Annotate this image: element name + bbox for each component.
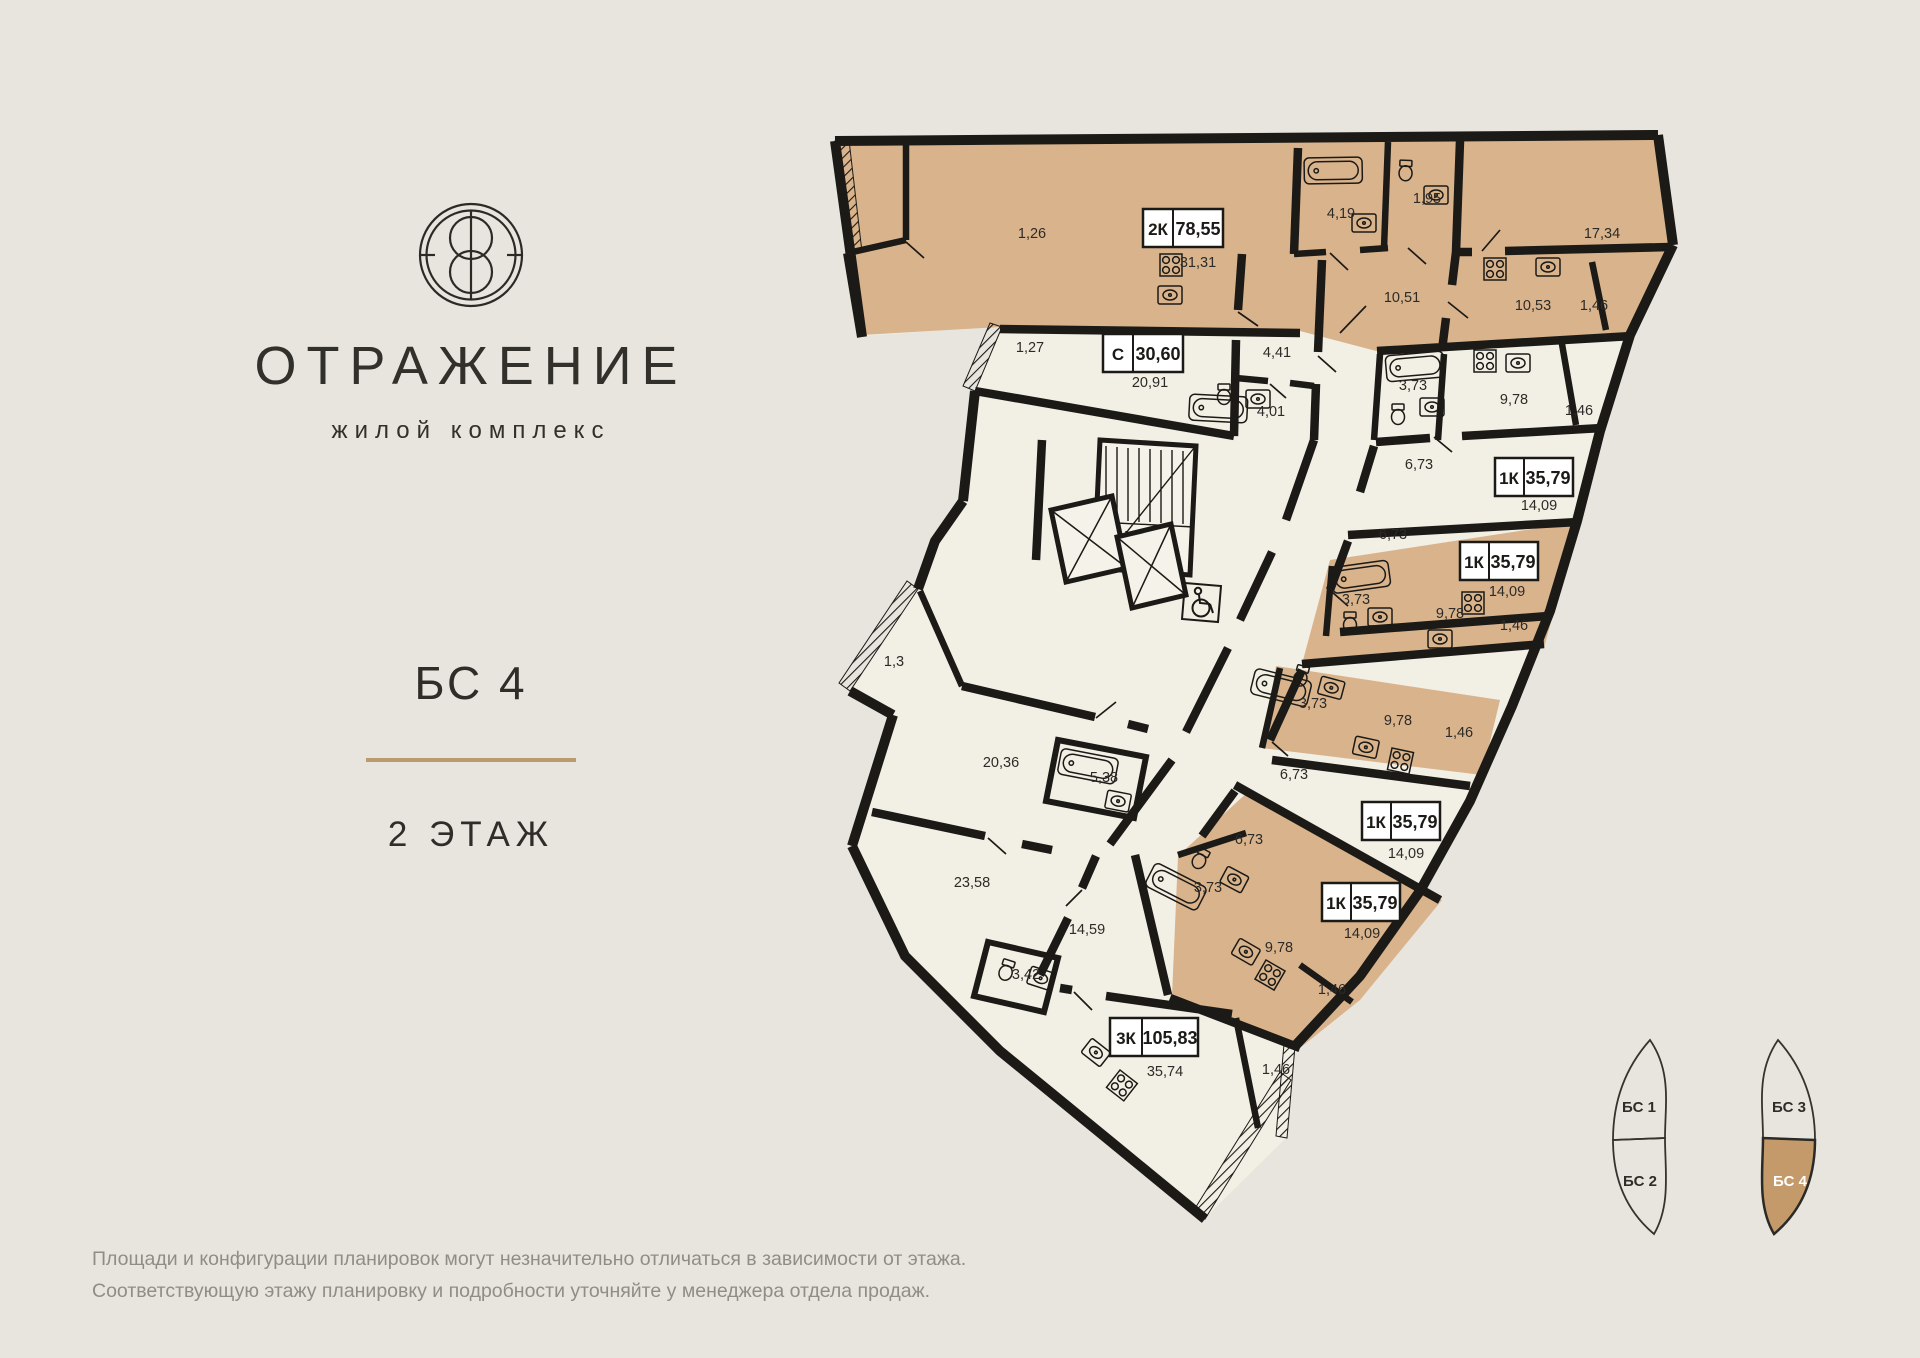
room-area-label: 20,91 (1132, 375, 1168, 391)
room-area-label: 1,46 (1565, 403, 1593, 419)
disclaimer-line-2: Соответствующую этажу планировку и подро… (92, 1275, 966, 1307)
room-area-label: 6,73 (1405, 457, 1433, 473)
section-title: БС 4 (151, 656, 791, 710)
room-area-label: 20,36 (983, 755, 1019, 771)
brochure-page: 1,26 31,31 4,19 1,95 17,34 10,51 10,53 1… (0, 0, 1920, 1358)
apartment-tag-3k[interactable]: 3К 105,83 (1110, 1018, 1198, 1056)
room-area-label: 3,73 (1399, 378, 1427, 394)
apartment-tag-2k[interactable]: 2К 78,55 (1143, 209, 1223, 247)
brand-logo-icon (418, 202, 524, 308)
room-area-label: 14,09 (1344, 926, 1380, 942)
room-area-label: 4,41 (1263, 345, 1291, 361)
apartment-area: 30,60 (1135, 344, 1180, 364)
room-area-label: 14,09 (1388, 846, 1424, 862)
room-area-label: 31,31 (1180, 255, 1216, 271)
brand-name: ОТРАЖЕНИЕ (151, 334, 791, 398)
room-area-label: 1,46 (1500, 618, 1528, 634)
room-area-label: 35,74 (1147, 1064, 1183, 1080)
apartment-type: 1К (1366, 813, 1386, 832)
room-area-label: 1,46 (1580, 298, 1608, 314)
room-area-label: 6,73 (1379, 527, 1407, 543)
room-area-label: 10,51 (1384, 290, 1420, 306)
minimap-section-label: БС 4 (1773, 1173, 1808, 1190)
minimap-section-bs3[interactable]: БС 3 (1762, 1040, 1815, 1140)
room-area-label: 3,42 (1012, 967, 1040, 983)
room-area-label: 17,34 (1584, 226, 1620, 242)
room-area-label: 4,01 (1257, 404, 1285, 420)
minimap-section-bs4-active[interactable]: БС 4 (1762, 1138, 1815, 1234)
floor-title: 2 ЭТАЖ (151, 814, 791, 856)
room-area-label: 1,46 (1445, 725, 1473, 741)
room-area-label: 1,46 (1318, 982, 1346, 998)
apartment-area: 35,79 (1352, 893, 1397, 913)
apartment-area: 35,79 (1525, 468, 1570, 488)
disclaimer-line-1: Площади и конфигурации планировок могут … (92, 1243, 966, 1275)
apartment-type: 1К (1326, 894, 1346, 913)
disclaimer: Площади и конфигурации планировок могут … (92, 1243, 966, 1307)
room-area-label: 5,38 (1090, 770, 1118, 786)
room-area-label: 14,59 (1069, 922, 1105, 938)
apartment-tag-1k[interactable]: 1К 35,79 (1495, 458, 1573, 496)
room-area-label: 1,46 (1262, 1062, 1290, 1078)
minimap-section-label: БС 2 (1623, 1173, 1657, 1190)
room-area-label: 3,73 (1342, 592, 1370, 608)
room-area-label: 14,09 (1521, 498, 1557, 514)
apartment-type: 1К (1464, 553, 1484, 572)
apartment-type: 3К (1116, 1029, 1136, 1048)
room-area-label: 10,53 (1515, 298, 1551, 314)
room-area-label: 3,73 (1299, 696, 1327, 712)
apartment-tag-1k[interactable]: 1К 35,79 (1460, 542, 1538, 580)
room-area-label: 9,78 (1384, 713, 1412, 729)
apartment-area: 35,79 (1490, 552, 1535, 572)
room-area-label: 1,27 (1016, 340, 1044, 356)
apartment-tag-studio[interactable]: С 30,60 (1103, 334, 1183, 372)
room-area-label: 9,78 (1436, 606, 1464, 622)
minimap-section-bs1[interactable]: БС 1 (1613, 1040, 1666, 1140)
apartment-type: С (1112, 345, 1124, 364)
brand-panel: ОТРАЖЕНИЕ жилой комплекс БС 4 2 ЭТАЖ (151, 150, 791, 856)
room-area-label: 1,26 (1018, 226, 1046, 242)
room-area-label: 1,3 (884, 654, 904, 670)
room-area-label: 6,73 (1280, 767, 1308, 783)
elevator-icon (1117, 524, 1186, 608)
room-area-label: 1,95 (1413, 191, 1441, 207)
apartment-area: 105,83 (1142, 1028, 1197, 1048)
apartment-tag-1k[interactable]: 1К 35,79 (1322, 883, 1400, 921)
room-area-label: 4,19 (1327, 206, 1355, 222)
room-area-label: 9,78 (1265, 940, 1293, 956)
apartment-type: 1К (1499, 469, 1519, 488)
apartment-type: 2К (1148, 220, 1168, 239)
room-area-label: 14,09 (1489, 584, 1525, 600)
minimap-section-label: БС 3 (1772, 1099, 1806, 1116)
brand-tagline: жилой комплекс (151, 416, 791, 446)
room-area-label: 3,73 (1194, 880, 1222, 896)
minimap-section-bs2[interactable]: БС 2 (1613, 1138, 1666, 1234)
apartment-2k-zone (840, 138, 1670, 352)
minimap-section-label: БС 1 (1622, 1099, 1656, 1116)
minimap: БС 1 БС 2 БС 3 БС 4 (1613, 1040, 1815, 1234)
apartment-tag-1k[interactable]: 1К 35,79 (1362, 802, 1440, 840)
accent-divider (366, 758, 576, 762)
room-area-label: 23,58 (954, 875, 990, 891)
apartment-area: 78,55 (1175, 219, 1220, 239)
room-area-label: 9,78 (1500, 392, 1528, 408)
apartment-area: 35,79 (1392, 812, 1437, 832)
room-area-label: 6,73 (1235, 832, 1263, 848)
